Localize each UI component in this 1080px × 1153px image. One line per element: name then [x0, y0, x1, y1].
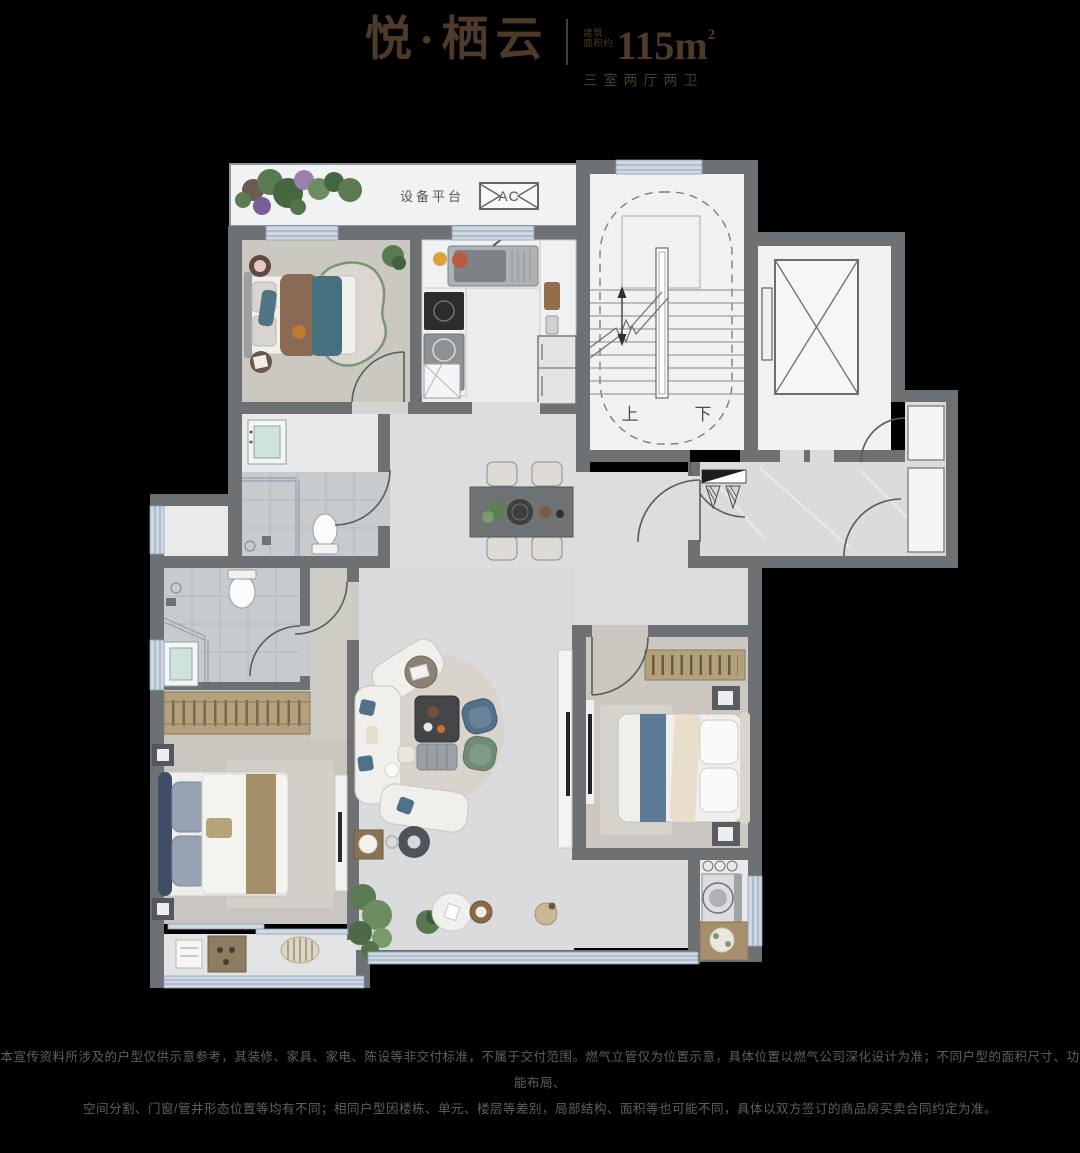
balcony-papers: [176, 940, 202, 968]
refrigerator: [538, 336, 576, 404]
box-dot: [217, 947, 223, 953]
ottoman: [398, 746, 415, 763]
disclaimer: 本宣传资料所涉及的户型仅供示意参考，其装修、家具、家电、陈设等非交付标准，不属于…: [0, 1044, 1080, 1122]
suite-door-gap: [347, 582, 359, 640]
table-top: [476, 907, 487, 918]
dish: [452, 252, 468, 268]
title-divider: [566, 19, 568, 65]
slider-master2: [256, 929, 348, 934]
master-headboard: [158, 772, 172, 896]
area-value: 115m2: [617, 14, 716, 67]
basin: [170, 648, 192, 680]
bedroom-door-gap: [592, 625, 648, 637]
ac-unit-box: AC: [480, 183, 538, 209]
window-east-laundry: [748, 876, 762, 946]
stairs-up-label: 上: [622, 405, 639, 424]
kitchen-opening: [472, 402, 540, 414]
shelf-jar: [727, 861, 737, 871]
centerpiece-leaf: [482, 511, 494, 523]
window-south-living: [368, 952, 698, 964]
nightstand-top: [157, 749, 169, 761]
toilet-bowl: [313, 514, 337, 546]
side-ball: [385, 763, 399, 777]
khaki-throw: [246, 774, 276, 894]
window-south-master: [164, 976, 364, 988]
washer-panel: [734, 874, 742, 922]
header: 悦·栖云 建筑 面积约 115m2 三室两厅两卫: [0, 14, 1080, 90]
decor: [437, 725, 445, 733]
coffee-table: [415, 696, 459, 742]
area-superscript: 2: [708, 27, 716, 43]
slider-master: [168, 924, 264, 929]
toilet-tank: [312, 544, 338, 554]
ac-label: AC: [498, 188, 519, 204]
utensil-holder: [546, 316, 558, 334]
stair-stringer: [656, 248, 668, 398]
area-prefix: 建筑 面积约: [584, 28, 614, 48]
floor-plan: AC 设备平台 上 下: [0, 0, 1080, 1153]
bedroom-door-gap: [352, 402, 408, 414]
tap-dot: [250, 431, 253, 434]
cutting-board: [544, 282, 560, 310]
pillow: [700, 720, 738, 764]
elevator-door-gap: [810, 450, 834, 462]
table-plate: [359, 835, 377, 853]
teddy-bear: [292, 325, 306, 339]
elevator: [762, 260, 858, 394]
window-stair: [616, 160, 702, 174]
window-north-kitchen: [452, 226, 534, 240]
window-west-niche: [150, 506, 164, 554]
serving-plate: [507, 499, 533, 525]
pillow: [700, 768, 738, 812]
bed-kids-headboard: [244, 272, 252, 358]
nightstand-top: [718, 691, 733, 705]
toilet-tank: [228, 570, 256, 579]
blanket-teal: [312, 276, 342, 356]
vase-handle: [549, 903, 556, 910]
suite-corridor-floor: [310, 568, 347, 740]
washer-drum-inner: [709, 889, 727, 907]
living-se-floor: [574, 860, 688, 948]
sofa-pillow: [357, 755, 374, 772]
niche-floor: [164, 506, 228, 556]
tap-dot: [250, 441, 253, 444]
nightstand-decor: [254, 260, 266, 272]
headboard-east: [740, 712, 750, 824]
pillow: [172, 782, 206, 832]
shelf-jar: [715, 861, 725, 871]
cup: [556, 510, 564, 518]
sofa-pillow: [358, 699, 376, 717]
shower-head: [166, 598, 176, 606]
plant-leaf: [392, 256, 406, 270]
area-block: 建筑 面积约 115m2 三室两厅两卫: [584, 14, 716, 90]
laundry-corner: [700, 861, 748, 960]
utility-shaft: [908, 468, 944, 552]
blue-runner: [640, 714, 666, 822]
pouf-center: [408, 836, 421, 849]
bowl: [539, 506, 551, 518]
area-prefix-bottom: 面积约: [584, 38, 614, 48]
dining-chair: [532, 536, 562, 560]
equipment-platform-label: 设备平台: [400, 189, 464, 204]
dish: [433, 252, 447, 266]
basin: [254, 426, 280, 458]
window-west-bath: [150, 640, 164, 690]
balcony-box: [208, 936, 246, 972]
entry-door-gap: [688, 476, 700, 540]
disclaimer-line2: 空间分割、门窗/管井形态位置等均有不同；相同户型因楼栋、单元、楼层等差别，局部结…: [0, 1096, 1080, 1122]
nightstand-top: [157, 903, 169, 915]
disclaimer-line1: 本宣传资料所涉及的户型仅供示意参考，其装修、家具、家电、陈设等非交付标准，不属于…: [0, 1044, 1080, 1096]
layout-spec: 三室两厅两卫: [584, 70, 716, 90]
sofa-pillow-cream: [366, 726, 378, 744]
pillow: [172, 836, 206, 886]
decor: [424, 723, 433, 732]
utility-shaft: [908, 406, 944, 460]
stairs-down-label: 下: [695, 405, 712, 424]
nightstand-top: [718, 827, 733, 841]
shower-head: [262, 536, 271, 545]
box-dot: [229, 947, 235, 953]
window-north-bedroom: [266, 226, 338, 240]
dining-chair: [487, 536, 517, 560]
dining-chair: [487, 462, 517, 486]
dining-chair: [532, 462, 562, 486]
toilet-bowl: [229, 576, 255, 608]
area-prefix-top: 建筑: [584, 28, 614, 38]
bath-door-gap: [378, 472, 390, 526]
box-dot: [223, 959, 229, 965]
elevator-door-gap: [780, 450, 804, 462]
tv-screen: [338, 812, 342, 862]
tv-screen-bedroom: [588, 714, 592, 794]
decor: [427, 706, 439, 718]
page-title: 悦·栖云: [365, 14, 550, 66]
flower-leaf: [725, 941, 731, 947]
tv-screen-living: [566, 712, 570, 796]
poster: 悦·栖云 建筑 面积约 115m2 三室两厅两卫: [0, 0, 1080, 1153]
cooktop: [424, 292, 464, 330]
accent-pillow: [206, 818, 232, 838]
hall-east-floor2: [574, 568, 748, 625]
shelf-jar: [703, 861, 713, 871]
flower-pot: [710, 928, 734, 952]
flower-leaf: [713, 933, 719, 939]
